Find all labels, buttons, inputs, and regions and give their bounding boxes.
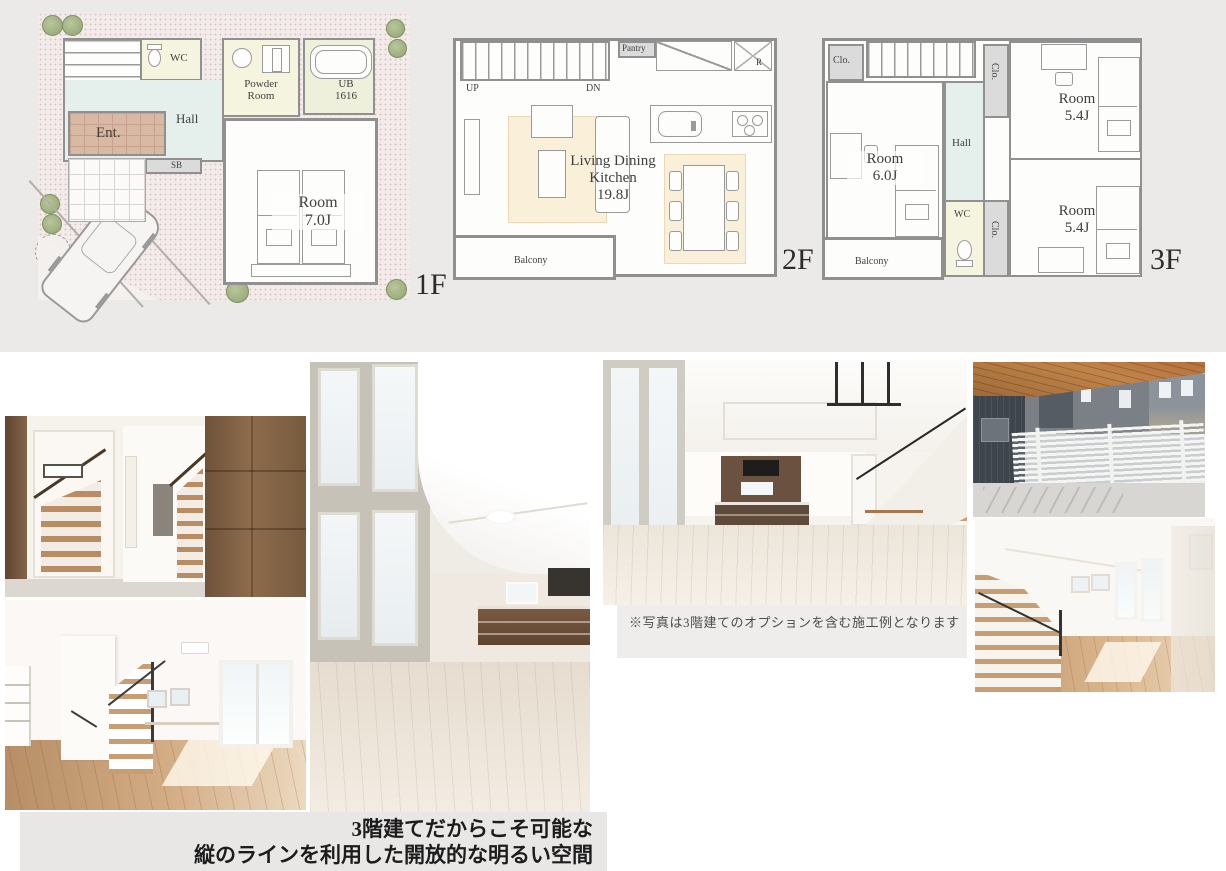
chair-icon <box>726 201 739 221</box>
powder-label: Powder Room <box>230 78 292 103</box>
stair-treads <box>177 468 203 578</box>
tree-icon <box>386 279 407 300</box>
wc-3f-label: WC <box>954 209 970 220</box>
wall-window <box>981 418 1009 442</box>
pillow <box>905 204 929 220</box>
floor-plan-1f: UP WC Powder Room UB 1616 Hall <box>38 12 410 300</box>
window-wall <box>310 362 430 700</box>
wood-panel-left <box>5 416 27 597</box>
cabinet-seam <box>205 470 306 472</box>
floor-planks <box>603 525 967 605</box>
photo-hallway-twin-stairs <box>5 416 306 597</box>
loft-railing <box>827 362 901 406</box>
shelf-line <box>5 702 31 704</box>
door <box>851 454 877 526</box>
tree-icon <box>42 15 63 36</box>
bathtub-icon <box>310 45 372 79</box>
shelf-line <box>5 684 31 686</box>
armchair-icon <box>531 105 573 138</box>
railing-post <box>1107 424 1114 488</box>
photo-room-stair <box>975 518 1215 692</box>
tv-panel <box>548 568 590 596</box>
house-window <box>1119 390 1131 408</box>
ac-unit <box>181 642 209 654</box>
small-window <box>1091 574 1110 591</box>
staircase <box>975 570 1061 692</box>
railing-post <box>835 362 838 403</box>
room-br-label: Room 5.4J <box>1037 203 1117 237</box>
large-window <box>219 660 293 748</box>
pillow <box>266 229 292 246</box>
floor-plans-band: UP WC Powder Room UB 1616 Hall <box>0 0 1226 352</box>
bedroom-1f-label: Room 7.0J <box>272 194 364 230</box>
window-bench <box>145 722 225 725</box>
pillow <box>1106 243 1130 259</box>
toilet-icon <box>148 49 161 67</box>
bathroom-1f <box>303 38 375 115</box>
void-hatch-2f <box>656 41 732 71</box>
kitchen-sink-icon <box>658 111 702 137</box>
stairs-3f <box>866 41 976 78</box>
deck-shadow-lines <box>983 487 1123 513</box>
desk-icon <box>1041 44 1087 70</box>
door <box>125 456 137 548</box>
vanity-icon <box>262 45 290 73</box>
refrigerator-2f <box>734 41 772 71</box>
dining-table-icon <box>683 165 725 251</box>
house-window <box>1159 382 1171 398</box>
stairs-2f <box>460 41 610 81</box>
photo-balcony <box>973 362 1205 517</box>
tall-window <box>611 368 639 540</box>
tall-window <box>372 364 418 492</box>
pale-wood-floor <box>603 525 967 605</box>
brochure-page: UP WC Powder Room UB 1616 Hall <box>0 0 1226 871</box>
railing-post <box>861 362 864 403</box>
toilet-icon <box>957 240 972 260</box>
floor-plan-3f: Clo. DN Clo. Room 5.4J Hall <box>822 38 1142 277</box>
sloped-ceiling-line <box>1005 548 1163 575</box>
closet-top-label: Clo. <box>833 55 850 66</box>
chair-icon <box>1055 72 1073 86</box>
pale-wood-floor <box>310 662 590 812</box>
ceiling-light <box>486 510 516 524</box>
tall-window <box>1141 558 1163 622</box>
pantry-label: Pantry <box>622 43 646 53</box>
pillow <box>311 229 337 246</box>
tv-board-icon <box>464 119 480 195</box>
dn-label-2f: DN <box>586 83 600 94</box>
headline-line2: 縦のラインを利用した開放的な明るい空間 <box>194 842 593 869</box>
chair-icon <box>726 231 739 251</box>
closet-rt-label: Clo. <box>989 63 1000 80</box>
open-shelf <box>5 666 31 746</box>
counter-line <box>715 514 809 516</box>
accent-wall <box>721 456 801 502</box>
tall-window <box>1115 562 1137 620</box>
tall-window <box>372 510 418 646</box>
side-wall-shade <box>1171 526 1215 692</box>
desk-icon <box>1038 247 1084 273</box>
room-tr-label: Room 5.4J <box>1037 91 1117 125</box>
study-counter <box>865 510 923 513</box>
railing-post <box>887 362 890 403</box>
burner <box>737 115 748 126</box>
wood-cabinet-wall <box>205 416 306 597</box>
slat-railing <box>1012 423 1205 491</box>
floor-tag-1f: 1F <box>415 268 447 302</box>
up-label-2f: UP <box>466 83 479 94</box>
tall-window <box>318 368 360 486</box>
fridge-label: R <box>756 57 762 67</box>
wc-label: WC <box>170 52 188 64</box>
floor-tag-2f: 2F <box>782 243 814 277</box>
tall-window <box>318 512 360 640</box>
tree-icon <box>386 19 405 38</box>
photo-note-text: ※写真は3階建てのオプションを含む施工例となります <box>629 612 960 631</box>
ub-label: UB 1616 <box>326 78 366 103</box>
small-window <box>147 690 167 708</box>
toilet-tank <box>956 260 973 267</box>
floor-planks <box>310 662 590 812</box>
floor-plan-2f: UP DN Pantry R <box>453 38 777 277</box>
tall-window <box>649 368 677 540</box>
toilet-tank <box>147 44 162 50</box>
tree-icon <box>388 39 407 58</box>
ceiling-recess-line <box>449 502 588 523</box>
house-window <box>1181 380 1193 396</box>
wood-floor <box>5 740 306 810</box>
cabinet-seam <box>205 528 306 530</box>
photo-room-white-stair <box>5 600 306 810</box>
headline-line1: 3階建てだからこそ可能な <box>352 816 594 843</box>
deck-floor <box>973 483 1205 517</box>
stair-alcove-left <box>33 430 115 578</box>
hallway <box>123 426 205 582</box>
counter-line <box>478 621 590 623</box>
sink-icon <box>232 48 252 68</box>
kitchen-window <box>741 482 773 495</box>
bed-footboard <box>251 264 351 277</box>
railing-post <box>1179 420 1186 484</box>
slit-window <box>43 464 83 478</box>
balcony-3f-label: Balcony <box>855 256 888 267</box>
photo-living-staircase <box>603 360 967 605</box>
closet-rb-label: Clo. <box>989 221 1000 238</box>
cabinet-seam <box>251 416 253 597</box>
hall-3f-label: Hall <box>952 137 971 149</box>
small-window <box>1071 576 1090 593</box>
car-cabin <box>78 214 139 276</box>
headline-band: 3階建てだからこそ可能な 縦のラインを利用した開放的な明るい空間 <box>20 812 607 871</box>
chair-icon <box>726 171 739 191</box>
ceiling-recess <box>723 402 877 440</box>
high-ceiling-wall <box>418 362 590 574</box>
burner <box>744 125 755 136</box>
entrance-label: Ent. <box>96 125 121 142</box>
closet-rt-3f <box>983 44 1009 118</box>
stove-icon <box>732 111 768 137</box>
floor-tag-3f: 3F <box>1150 243 1182 277</box>
kitchen-window <box>506 582 538 604</box>
sb-label: SB <box>171 160 182 170</box>
vanity-basin <box>272 48 282 72</box>
small-window <box>170 688 190 706</box>
porch-tiles <box>68 158 146 222</box>
tv-panel <box>743 460 779 476</box>
ldk-label: Living Dining Kitchen 19.8J <box>548 153 678 203</box>
shelf-line <box>5 720 31 722</box>
chair-icon <box>669 201 682 221</box>
kitchen-counter <box>478 606 590 645</box>
tree-icon <box>62 15 83 36</box>
burner <box>752 115 763 126</box>
tree-icon <box>42 214 62 234</box>
window-mullion <box>256 664 259 744</box>
bathtub-inner <box>315 50 367 74</box>
stair-treads <box>41 480 101 572</box>
chair-icon <box>669 231 682 251</box>
hall-label: Hall <box>176 112 198 127</box>
end-door <box>153 484 173 536</box>
stair-partition-wall <box>61 636 115 760</box>
closet-rb-3f <box>983 200 1009 277</box>
counter-line <box>478 633 590 635</box>
balcony-2f-label: Balcony <box>514 255 547 266</box>
bed-fold <box>896 190 936 191</box>
faucet <box>691 121 696 131</box>
photo-note-strip: ※写真は3階建てのオプションを含む施工例となります <box>617 605 967 658</box>
room-left-label: Room 6.0J <box>847 151 923 185</box>
photo-tall-living <box>310 362 590 812</box>
railing-post <box>1059 610 1062 656</box>
car-wheel <box>95 293 109 310</box>
